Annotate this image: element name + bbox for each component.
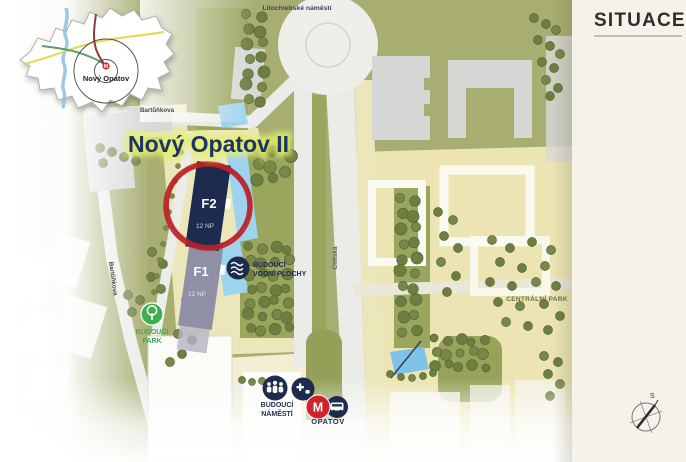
tree — [502, 318, 511, 327]
tree — [397, 328, 406, 337]
tree — [398, 311, 410, 323]
label-future-square-2: NÁMĚSTÍ — [261, 409, 294, 418]
tree — [255, 326, 265, 336]
compass-north-label: S — [650, 393, 655, 400]
tree — [270, 296, 279, 305]
tree — [408, 284, 419, 295]
building-notch — [424, 104, 432, 116]
tree — [544, 370, 553, 379]
tree — [494, 298, 503, 307]
tree — [528, 238, 537, 247]
inset-place-label: Nový Opatov — [83, 74, 130, 83]
road-west-carriageway — [294, 78, 312, 368]
tree — [251, 174, 263, 186]
tree — [542, 20, 551, 29]
tree — [285, 323, 294, 332]
label-future-park-2: PARK — [142, 338, 161, 345]
label-future-square-1: BUDOUCÍ — [261, 400, 295, 409]
tree — [437, 258, 446, 267]
tree — [269, 323, 281, 335]
building-f2-label: F2 — [201, 196, 216, 211]
tree — [524, 322, 533, 331]
tree — [538, 58, 547, 67]
tree — [258, 66, 270, 78]
tree — [452, 272, 461, 281]
tree — [449, 216, 458, 225]
tree — [453, 362, 462, 371]
tree — [409, 237, 420, 248]
tree — [271, 241, 283, 253]
shrub — [175, 163, 180, 168]
label-chilska: Chilská — [332, 246, 339, 270]
tree — [254, 26, 266, 38]
tree — [264, 161, 276, 173]
tree — [411, 222, 420, 231]
building-f2-floors: 12 NP — [196, 223, 214, 230]
tree — [467, 338, 475, 346]
tree — [281, 312, 293, 324]
tree — [270, 285, 282, 297]
tree — [280, 167, 291, 178]
tree — [443, 288, 452, 297]
label-future-water-2: VODNÍ PLOCHY — [253, 269, 307, 278]
tree — [467, 360, 478, 371]
tree — [530, 14, 539, 23]
panel-fold-shadow — [552, 0, 572, 462]
tree — [257, 82, 266, 91]
tree — [396, 296, 407, 307]
tree — [434, 208, 443, 217]
tree — [508, 282, 517, 291]
tree — [387, 371, 394, 378]
tree — [244, 242, 253, 251]
tree — [480, 335, 489, 344]
tree — [456, 349, 464, 357]
tree — [440, 232, 449, 241]
tree — [247, 324, 256, 333]
tree — [282, 246, 291, 255]
tree — [541, 262, 550, 271]
tree — [281, 284, 290, 293]
building-courtyard-opening — [488, 128, 514, 140]
icon-people — [263, 376, 288, 401]
tree — [255, 97, 266, 108]
project-title: Nový Opatov II — [128, 131, 289, 157]
metro-m-glyph: M — [313, 401, 323, 415]
label-bartunkova-top: Bartůňkova — [140, 107, 175, 114]
tree — [256, 282, 266, 292]
tree — [257, 12, 268, 23]
tree — [412, 325, 423, 336]
tree — [445, 360, 453, 368]
tree — [254, 159, 265, 170]
icon-water-waves — [227, 257, 250, 280]
tree — [407, 211, 419, 223]
tree — [518, 264, 527, 273]
building-f1-floors: 12 NP — [188, 291, 206, 298]
page: F2 12 NP F1 12 NP Litochlebské náměstí B… — [0, 0, 686, 462]
tree — [410, 269, 419, 278]
tree — [256, 52, 267, 63]
tree — [482, 364, 490, 372]
tree — [157, 285, 166, 294]
icon-metro: M — [306, 395, 330, 419]
tree — [488, 236, 497, 245]
tree — [506, 244, 515, 253]
tree — [443, 336, 452, 345]
panel-title: SITUACE — [594, 10, 686, 31]
label-opatov-station: OPATOV — [311, 417, 344, 426]
tree — [248, 285, 257, 294]
tree — [441, 350, 452, 361]
tree — [283, 298, 293, 308]
tree — [454, 244, 463, 253]
tree — [394, 265, 406, 277]
tree — [409, 310, 418, 319]
tree — [534, 36, 543, 45]
road-median — [312, 95, 326, 340]
label-future-park-1: BUDOUCÍ — [136, 327, 170, 336]
icon-park-tree — [141, 303, 163, 325]
tree — [544, 326, 553, 335]
tree — [430, 370, 437, 377]
building-f1-label: F1 — [193, 264, 208, 279]
side-panel — [572, 0, 686, 462]
shrub — [157, 257, 162, 262]
label-future-water-1: BUDOUCÍ — [253, 260, 287, 269]
label-litochlebske-namesti: Litochlebské náměstí — [262, 5, 332, 12]
tree — [166, 358, 175, 367]
tree — [242, 308, 254, 320]
tree — [257, 244, 267, 254]
tree — [411, 252, 423, 264]
tree — [395, 223, 407, 235]
tree — [410, 294, 422, 306]
tree — [532, 278, 541, 287]
tree — [397, 255, 408, 266]
tree — [486, 278, 495, 287]
shrub — [163, 225, 168, 230]
shrub — [154, 273, 159, 278]
building-notch — [424, 78, 432, 90]
tree — [478, 349, 489, 360]
tree — [398, 281, 407, 290]
tree — [259, 296, 271, 308]
tree — [410, 196, 421, 207]
tree — [540, 352, 549, 361]
tree — [457, 334, 468, 345]
inset-metro-m: M — [104, 64, 108, 70]
site-plan-map: F2 12 NP F1 12 NP Litochlebské náměstí B… — [0, 0, 686, 462]
shrub — [160, 241, 165, 246]
tree — [430, 334, 438, 342]
tree — [496, 258, 505, 267]
tree — [284, 254, 294, 264]
tree — [258, 312, 267, 321]
tree — [178, 350, 187, 359]
building-gray-topright-a — [372, 56, 430, 140]
tree — [542, 76, 551, 85]
tree — [258, 37, 267, 46]
shrub — [151, 289, 156, 294]
tree — [399, 240, 408, 249]
tree — [395, 193, 404, 202]
tree — [268, 173, 278, 183]
